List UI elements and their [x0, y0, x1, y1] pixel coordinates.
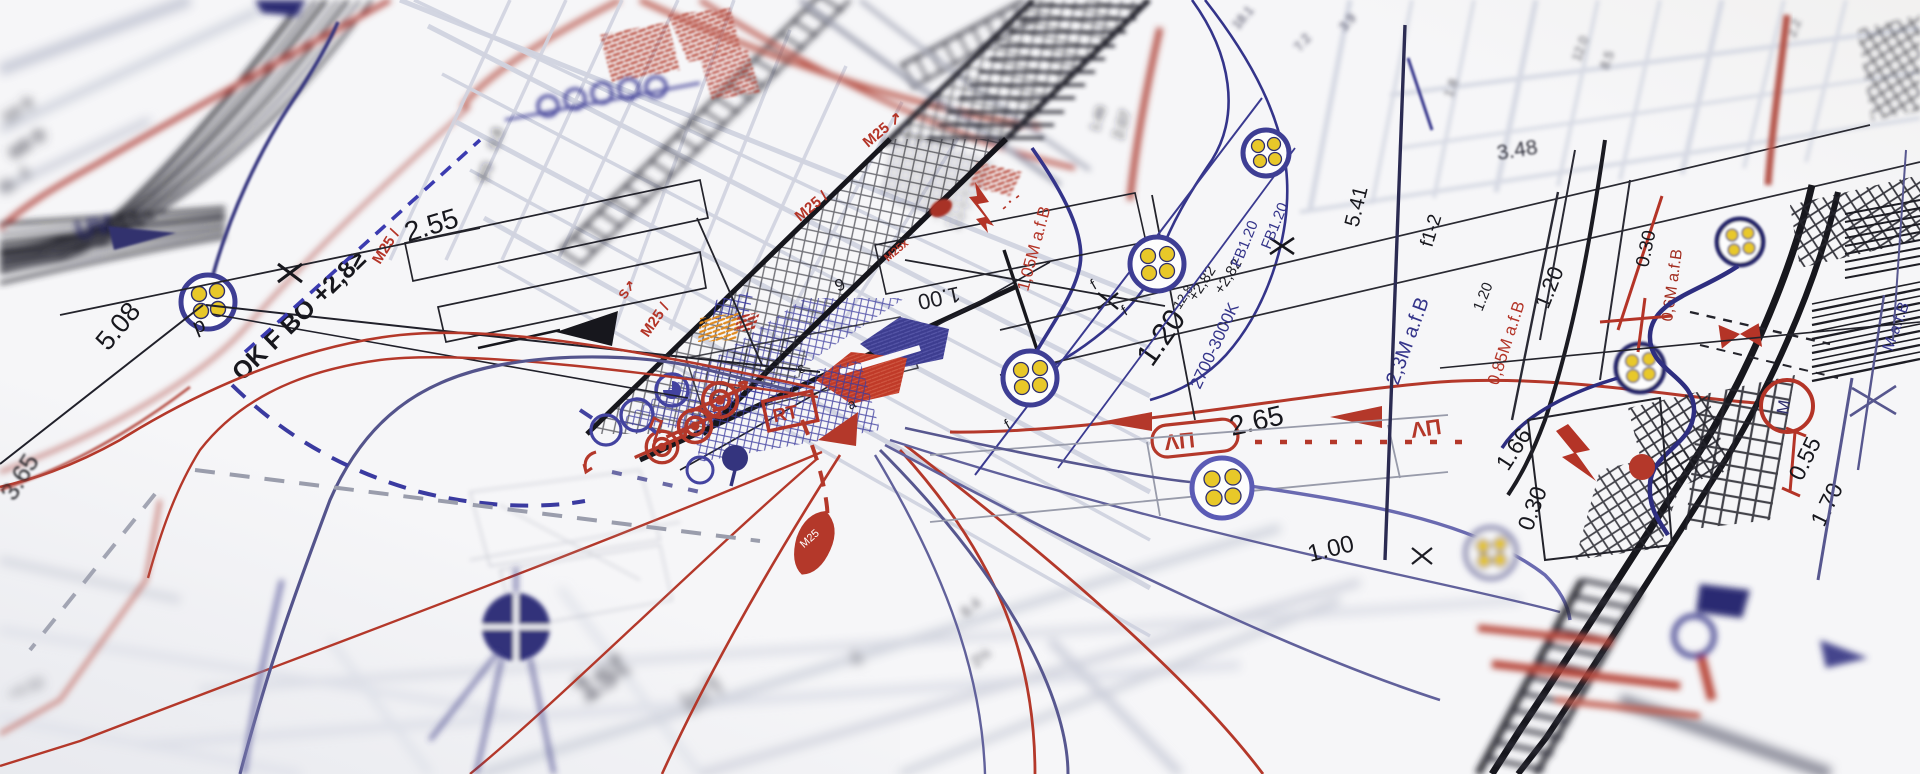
svg-text:ΛΠ: ΛΠ [1163, 427, 1196, 455]
